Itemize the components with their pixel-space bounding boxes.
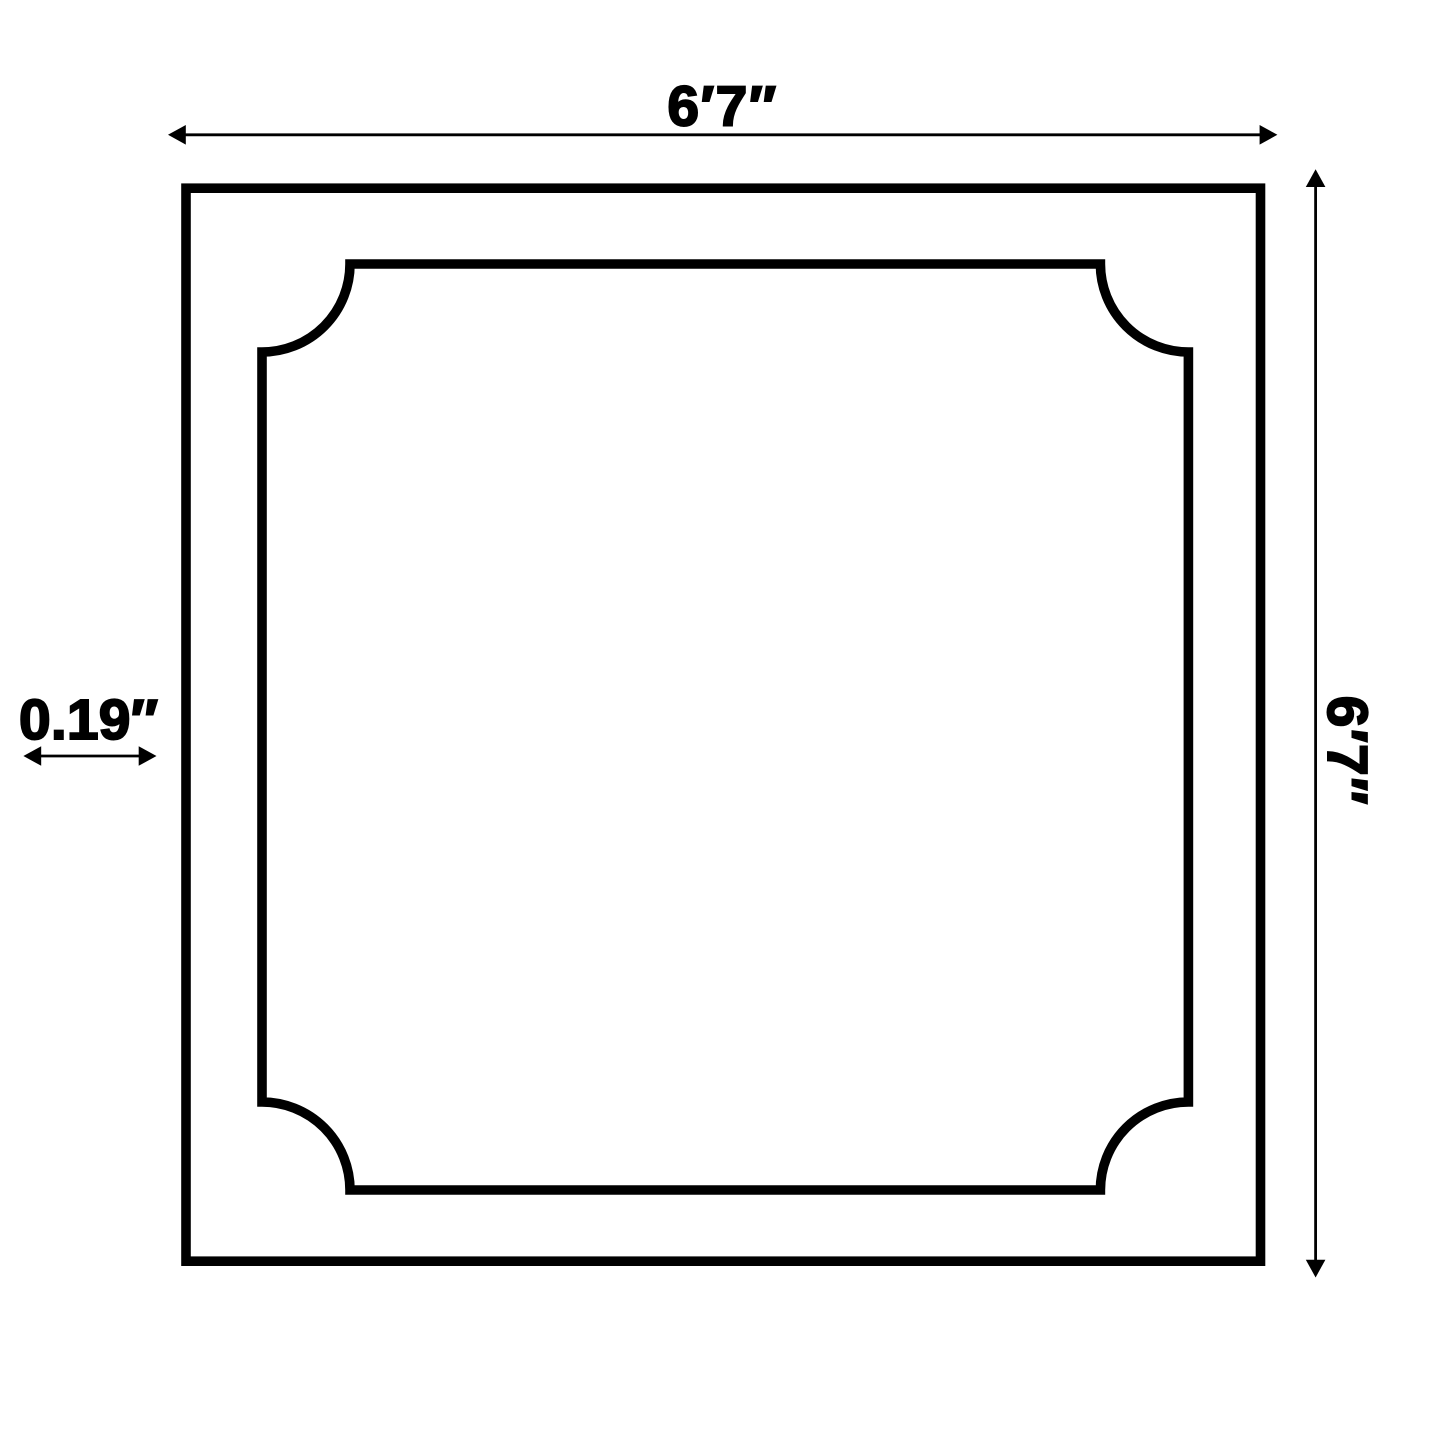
svg-text:6′7″: 6′7″	[667, 74, 777, 138]
svg-text:6′7″: 6′7″	[1315, 696, 1379, 806]
svg-text:0.19″: 0.19″	[19, 688, 158, 752]
